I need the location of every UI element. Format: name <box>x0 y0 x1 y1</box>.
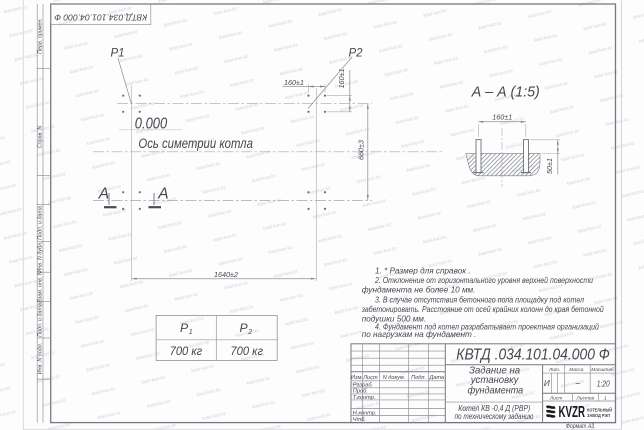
svg-text:1:20: 1:20 <box>597 379 610 389</box>
svg-text:Листов: Листов <box>576 396 595 402</box>
svg-text:1640±2: 1640±2 <box>214 270 238 279</box>
svg-text:P: P <box>180 321 189 335</box>
svg-text:Взам. инв. N: Взам. инв. N <box>38 271 44 303</box>
svg-text:по техническому заданию: по техническому заданию <box>455 412 534 421</box>
svg-text:700 кг: 700 кг <box>230 344 263 358</box>
svg-text:2. Отклонение от горизонтально: 2. Отклонение от горизонтального уровня … <box>374 276 593 285</box>
svg-text:Лит.: Лит. <box>548 367 560 373</box>
svg-text:KVZR: KVZR <box>559 404 586 421</box>
svg-text:Изм.: Изм. <box>351 375 363 381</box>
svg-text:1: 1 <box>604 396 607 402</box>
svg-text:160±1: 160±1 <box>284 78 304 87</box>
svg-text:1. * Размер для справок .: 1. * Размер для справок . <box>375 266 471 275</box>
svg-text:P: P <box>240 321 249 335</box>
svg-text:Подп. и дата: Подп. и дата <box>38 206 44 240</box>
svg-text:Лист: Лист <box>549 396 562 402</box>
svg-text:–: – <box>575 378 581 387</box>
svg-text:160±1: 160±1 <box>492 112 512 121</box>
svg-text:3. В случае отсутствия бетонно: 3. В случае отсутствия бетонного пола пл… <box>375 295 584 304</box>
svg-text:Масса: Масса <box>569 367 584 373</box>
svg-text:2: 2 <box>247 329 252 336</box>
svg-text:N докум.: N докум. <box>383 375 406 381</box>
svg-text:Т.контр.: Т.контр. <box>353 395 376 401</box>
svg-text:Проб.: Проб. <box>353 389 368 395</box>
svg-text:Перв. примен.: Перв. примен. <box>38 18 44 54</box>
svg-text:КВТД .034.101.04.000 Ф: КВТД .034.101.04.000 Ф <box>456 347 610 364</box>
svg-text:160±1: 160±1 <box>337 68 346 88</box>
svg-text:И: И <box>544 378 550 388</box>
svg-text:P2: P2 <box>349 48 364 60</box>
svg-text:Масштаб: Масштаб <box>591 367 614 373</box>
svg-text:Дата: Дата <box>428 375 444 381</box>
svg-text:А: А <box>98 186 109 203</box>
svg-text:Справ. N: Справ. N <box>38 126 44 149</box>
svg-text:А: А <box>157 186 168 203</box>
svg-text:Н.контр.: Н.контр. <box>353 410 377 416</box>
svg-text:Инв. N подл.: Инв. N подл. <box>38 343 44 375</box>
svg-text:по нагрузкам на фундамент .: по нагрузкам на фундамент . <box>362 330 477 339</box>
svg-text:А – А (1:5): А – А (1:5) <box>471 83 540 100</box>
svg-text:Формат А3: Формат А3 <box>566 423 595 430</box>
svg-text:50±1: 50±1 <box>545 158 554 174</box>
svg-text:Разраб.: Разраб. <box>353 383 373 389</box>
svg-text:Подп. и дата: Подп. и дата <box>38 303 44 337</box>
svg-text:фундамента не более 10 мм.: фундамента не более 10 мм. <box>362 286 476 295</box>
svg-text:ЗАВОД РЭП: ЗАВОД РЭП <box>587 413 610 418</box>
svg-text:700 кг: 700 кг <box>170 344 203 358</box>
svg-text:Инв. N дубл.: Инв. N дубл. <box>38 241 44 272</box>
svg-text:P1: P1 <box>111 47 125 59</box>
svg-text:660±3: 660±3 <box>357 140 366 160</box>
svg-text:Подп.: Подп. <box>411 375 426 381</box>
svg-text:1: 1 <box>189 329 193 336</box>
svg-text:фундамента: фундамента <box>468 384 524 396</box>
svg-text:Чтб.: Чтб. <box>353 417 366 423</box>
svg-text:КВТД.034.101.04.000 Ф: КВТД.034.101.04.000 Ф <box>54 13 147 23</box>
svg-text:Ось симетрии котла: Ось симетрии котла <box>138 135 253 151</box>
svg-text:Лист: Лист <box>362 375 378 381</box>
svg-text:забетонировать. Расстояние от: забетонировать. Расстояние от осей крайн… <box>361 305 604 314</box>
svg-text:КОТЕЛЬНЫЙ: КОТЕЛЬНЫЙ <box>587 408 612 413</box>
